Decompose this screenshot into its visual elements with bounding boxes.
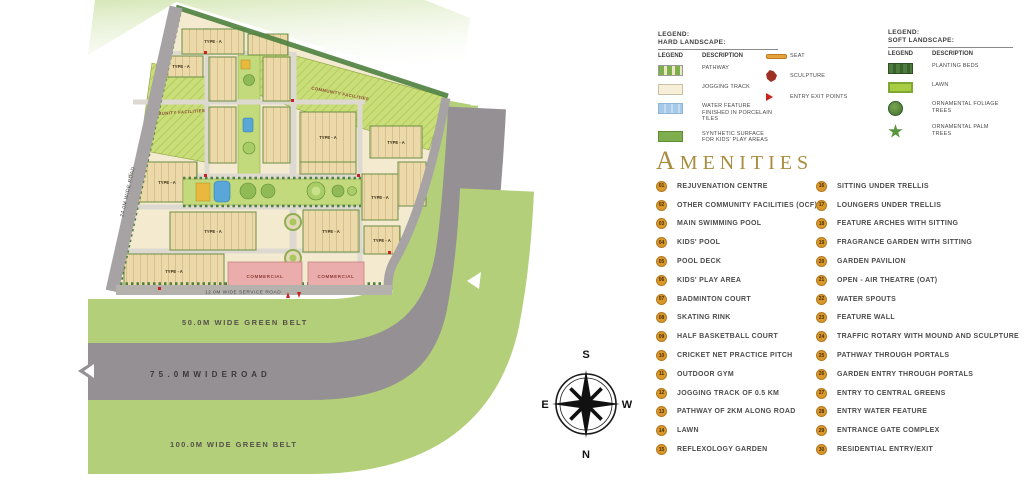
amenity-number-badge: 20 <box>816 256 827 267</box>
site-plan-map: 50.0M WIDE GREEN BELT 7 5 . 0 M W I D E … <box>0 0 535 487</box>
svg-text:TYPE - A: TYPE - A <box>319 135 337 140</box>
central-spine <box>238 55 260 175</box>
svg-text:TYPE - A: TYPE - A <box>373 238 391 243</box>
amenity-label: REJUVENATION CENTRE <box>677 183 768 190</box>
central-greens-band <box>183 179 361 205</box>
amenity-number-badge: 13 <box>656 406 667 417</box>
amenity-item: 25PATHWAY THROUGH PORTALS <box>816 346 1019 365</box>
compass-south-label: S <box>582 349 589 361</box>
amenity-label: POOL DECK <box>677 258 721 265</box>
svg-text:TYPE - A: TYPE - A <box>172 64 190 69</box>
jogging-track-swatch <box>658 84 683 95</box>
amenity-label: OPEN - AIR THEATRE (OAT) <box>837 277 937 284</box>
amenity-label: LAWN <box>677 427 699 434</box>
amenity-item: 18FEATURE ARCHES WITH SITTING <box>816 215 1019 234</box>
legend-row-water-feature: WATER FEATURE FINISHED IN PORCELAIN TILE… <box>658 103 778 123</box>
legend-soft-title-2: SOFT LANDSCAPE: <box>888 37 1013 45</box>
amenity-item: 15REFLEXOLOGY GARDEN <box>656 440 817 459</box>
legend-row-lawn: LAWN <box>888 82 1013 93</box>
amenity-label: GARDEN ENTRY THROUGH PORTALS <box>837 371 973 378</box>
legend-label: ORNAMENTAL FOLIAGE TREES <box>932 101 1006 114</box>
planting-beds-swatch <box>888 63 913 74</box>
legend-row-synthetic-surface: SYNTHETIC SURFACE FOR KIDS' PLAY AREAS <box>658 131 778 144</box>
amenity-label: BADMINTON COURT <box>677 296 751 303</box>
amenity-item: 03MAIN SWIMMING POOL <box>656 215 817 234</box>
amenity-number-badge: 07 <box>656 294 667 305</box>
legend-row-palm-trees: ORNAMENTAL PALM TREES <box>888 124 1013 139</box>
amenity-label: MAIN SWIMMING POOL <box>677 220 761 227</box>
legend-row-entry-exit: ENTRY EXIT POINTS <box>766 93 876 101</box>
svg-text:TYPE - A: TYPE - A <box>204 39 222 44</box>
amenity-label: SITTING UNDER TRELLIS <box>837 183 929 190</box>
amenity-number-badge: 11 <box>656 369 667 380</box>
label-road-75: 7 5 . 0 M W I D E R O A D <box>150 370 268 379</box>
amenity-item: 06KIDS' PLAY AREA <box>656 271 817 290</box>
amenity-label: HALF BASKETBALL COURT <box>677 333 778 340</box>
amenity-number-badge: 19 <box>816 237 827 248</box>
amenity-item: 24TRAFFIC ROTARY WITH MOUND AND SCULPTUR… <box>816 327 1019 346</box>
legend-label: SCULPTURE <box>790 73 825 79</box>
amenity-number-badge: 08 <box>656 312 667 323</box>
amenity-number-badge: 14 <box>656 425 667 436</box>
compass-rose: S N E W <box>540 340 632 462</box>
sculpture-icon <box>766 70 777 82</box>
svg-text:TYPE - A: TYPE - A <box>387 140 405 145</box>
legend-label: PATHWAY <box>702 65 776 72</box>
amenity-number-badge: 10 <box>656 350 667 361</box>
amenity-item: 22WATER SPOUTS <box>816 290 1019 309</box>
amenity-item: 23FEATURE WALL <box>816 309 1019 328</box>
seat-icon <box>766 54 787 59</box>
svg-text:TYPE - A: TYPE - A <box>204 229 222 234</box>
amenity-item: 28ENTRY WATER FEATURE <box>816 403 1019 422</box>
amenity-label: ENTRY TO CENTRAL GREENS <box>837 390 946 397</box>
divider <box>658 49 778 50</box>
amenity-number-badge: 25 <box>816 350 827 361</box>
amenity-label: KIDS' PLAY AREA <box>677 277 741 284</box>
amenities-column-right: 16SITTING UNDER TRELLIS 17LOUNGERS UNDER… <box>816 177 1019 459</box>
amenity-label: FEATURE ARCHES WITH SITTING <box>837 220 958 227</box>
water-feature-swatch <box>658 103 683 114</box>
amenity-label: RESIDENTIAL ENTRY/EXIT <box>837 446 933 453</box>
amenity-item: 07BADMINTON COURT <box>656 290 817 309</box>
svg-text:TYPE - A: TYPE - A <box>371 195 389 200</box>
amenity-number-badge: 29 <box>816 425 827 436</box>
amenity-number-badge: 02 <box>656 200 667 211</box>
legend-column-header: LEGEND <box>658 53 702 59</box>
legend-hard-title-2: HARD LANDSCAPE: <box>658 39 778 47</box>
amenity-number-badge: 01 <box>656 181 667 192</box>
amenity-item: 13PATHWAY OF 2KM ALONG ROAD <box>656 403 817 422</box>
amenity-item: 11OUTDOOR GYM <box>656 365 817 384</box>
legend-row-seat: SEAT <box>766 53 876 59</box>
label-service-road: 12.0M WIDE SERVICE ROAD <box>205 290 281 296</box>
foliage-tree-icon <box>888 101 903 116</box>
description-column-header: DESCRIPTION <box>702 53 743 59</box>
amenity-label: FEATURE WALL <box>837 314 895 321</box>
legend-markers: SEAT SCULPTURE ENTRY EXIT POINTS <box>766 53 876 112</box>
compass-east-label: E <box>541 399 548 411</box>
amenity-number-badge: 18 <box>816 218 827 229</box>
legend-soft-landscape: LEGEND: SOFT LANDSCAPE: LEGEND DESCRIPTI… <box>888 29 1013 147</box>
amenity-label: FRAGRANCE GARDEN WITH SITTING <box>837 239 972 246</box>
amenity-number-badge: 06 <box>656 275 667 286</box>
amenity-number-badge: 09 <box>656 331 667 342</box>
description-column-header: DESCRIPTION <box>932 51 973 57</box>
label-commercial-1: COMMERCIAL <box>247 274 284 279</box>
amenity-label: PATHWAY OF 2KM ALONG ROAD <box>677 408 796 415</box>
amenity-number-badge: 26 <box>816 369 827 380</box>
master-plan-page: 50.0M WIDE GREEN BELT 7 5 . 0 M W I D E … <box>0 0 1024 487</box>
label-green-belt-50: 50.0M WIDE GREEN BELT <box>182 318 308 327</box>
label-commercial-2: COMMERCIAL <box>318 274 355 279</box>
amenity-item: 20GARDEN PAVILION <box>816 252 1019 271</box>
amenity-number-badge: 17 <box>816 200 827 211</box>
amenity-item: 21OPEN - AIR THEATRE (OAT) <box>816 271 1019 290</box>
amenity-item: 10CRICKET NET PRACTICE PITCH <box>656 346 817 365</box>
legend-column-header: LEGEND <box>888 51 932 57</box>
synthetic-surface-swatch <box>658 131 683 142</box>
legend-row-pathway: PATHWAY <box>658 65 778 76</box>
amenity-number-badge: 22 <box>816 294 827 305</box>
label-green-belt-100: 100.0M WIDE GREEN BELT <box>170 440 297 449</box>
legend-label: PLANTING BEDS <box>932 63 1006 70</box>
amenity-number-badge: 04 <box>656 237 667 248</box>
amenity-label: JOGGING TRACK OF 0.5 KM <box>677 390 779 397</box>
legend-label: ENTRY EXIT POINTS <box>790 94 848 100</box>
amenity-number-badge: 24 <box>816 331 827 342</box>
amenity-label: OUTDOOR GYM <box>677 371 734 378</box>
amenity-label: CRICKET NET PRACTICE PITCH <box>677 352 793 359</box>
amenity-item: 04KIDS' POOL <box>656 233 817 252</box>
amenity-number-badge: 16 <box>816 181 827 192</box>
amenity-label: WATER SPOUTS <box>837 296 896 303</box>
lawn-swatch <box>888 82 913 93</box>
divider <box>888 47 1013 48</box>
amenity-item: 19FRAGRANCE GARDEN WITH SITTING <box>816 233 1019 252</box>
amenity-label: GARDEN PAVILION <box>837 258 906 265</box>
palm-tree-icon <box>888 124 903 139</box>
amenity-number-badge: 15 <box>656 444 667 455</box>
legend-hard-landscape: LEGEND: HARD LANDSCAPE: LEGEND DESCRIPTI… <box>658 31 778 152</box>
amenity-item: 30RESIDENTIAL ENTRY/EXIT <box>816 440 1019 459</box>
legend-hard-header: LEGEND DESCRIPTION <box>658 53 778 59</box>
amenity-item: 17LOUNGERS UNDER TRELLIS <box>816 196 1019 215</box>
amenity-number-badge: 28 <box>816 406 827 417</box>
legend-soft-header: LEGEND DESCRIPTION <box>888 51 1013 57</box>
amenity-item: 01REJUVENATION CENTRE <box>656 177 817 196</box>
entry-exit-arrow-icon <box>766 93 773 101</box>
amenity-label: ENTRANCE GATE COMPLEX <box>837 427 940 434</box>
pathway-swatch <box>658 65 683 76</box>
legend-label: LAWN <box>932 82 1006 89</box>
legend-row-jogging-track: JOGGING TRACK <box>658 84 778 95</box>
amenity-item: 29ENTRANCE GATE COMPLEX <box>816 421 1019 440</box>
amenity-item: 26GARDEN ENTRY THROUGH PORTALS <box>816 365 1019 384</box>
legend-soft-title-1: LEGEND: <box>888 29 1013 37</box>
amenity-label: OTHER COMMUNITY FACILITIES (OCF) <box>677 202 817 209</box>
amenity-item: 12JOGGING TRACK OF 0.5 KM <box>656 384 817 403</box>
amenity-label: SKATING RINK <box>677 314 731 321</box>
amenity-item: 05POOL DECK <box>656 252 817 271</box>
legend-row-planting-beds: PLANTING BEDS <box>888 63 1013 74</box>
amenity-number-badge: 23 <box>816 312 827 323</box>
amenity-number-badge: 27 <box>816 388 827 399</box>
amenities-column-left: 01REJUVENATION CENTRE 02OTHER COMMUNITY … <box>656 177 817 459</box>
legend-label: SEAT <box>790 53 805 59</box>
amenities-title: AMENITIES <box>656 146 813 176</box>
compass-north-label: N <box>582 449 590 461</box>
amenity-number-badge: 21 <box>816 275 827 286</box>
amenity-label: KIDS' POOL <box>677 239 720 246</box>
amenity-number-badge: 03 <box>656 218 667 229</box>
amenity-item: 14LAWN <box>656 421 817 440</box>
svg-text:TYPE - A: TYPE - A <box>322 229 340 234</box>
amenity-item: 16SITTING UNDER TRELLIS <box>816 177 1019 196</box>
amenity-number-badge: 05 <box>656 256 667 267</box>
amenity-label: LOUNGERS UNDER TRELLIS <box>837 202 941 209</box>
legend-label: JOGGING TRACK <box>702 84 776 91</box>
svg-text:TYPE - A: TYPE - A <box>158 180 176 185</box>
amenity-number-badge: 12 <box>656 388 667 399</box>
legend-label: WATER FEATURE FINISHED IN PORCELAIN TILE… <box>702 103 776 123</box>
amenity-item: 02OTHER COMMUNITY FACILITIES (OCF) <box>656 196 817 215</box>
amenity-label: REFLEXOLOGY GARDEN <box>677 446 767 453</box>
compass-west-label: W <box>622 399 632 411</box>
amenity-label: PATHWAY THROUGH PORTALS <box>837 352 949 359</box>
svg-text:TYPE - A: TYPE - A <box>165 269 183 274</box>
amenity-number-badge: 30 <box>816 444 827 455</box>
amenity-item: 27ENTRY TO CENTRAL GREENS <box>816 384 1019 403</box>
amenity-label: ENTRY WATER FEATURE <box>837 408 927 415</box>
legend-row-sculpture: SCULPTURE <box>766 70 876 82</box>
legend-hard-title-1: LEGEND: <box>658 31 778 39</box>
amenity-item: 08SKATING RINK <box>656 309 817 328</box>
legend-label: SYNTHETIC SURFACE FOR KIDS' PLAY AREAS <box>702 131 776 144</box>
amenity-label: TRAFFIC ROTARY WITH MOUND AND SCULPTURE <box>837 333 1019 340</box>
legend-label: ORNAMENTAL PALM TREES <box>932 124 1006 137</box>
amenity-item: 09HALF BASKETBALL COURT <box>656 327 817 346</box>
legend-row-foliage-trees: ORNAMENTAL FOLIAGE TREES <box>888 101 1013 116</box>
